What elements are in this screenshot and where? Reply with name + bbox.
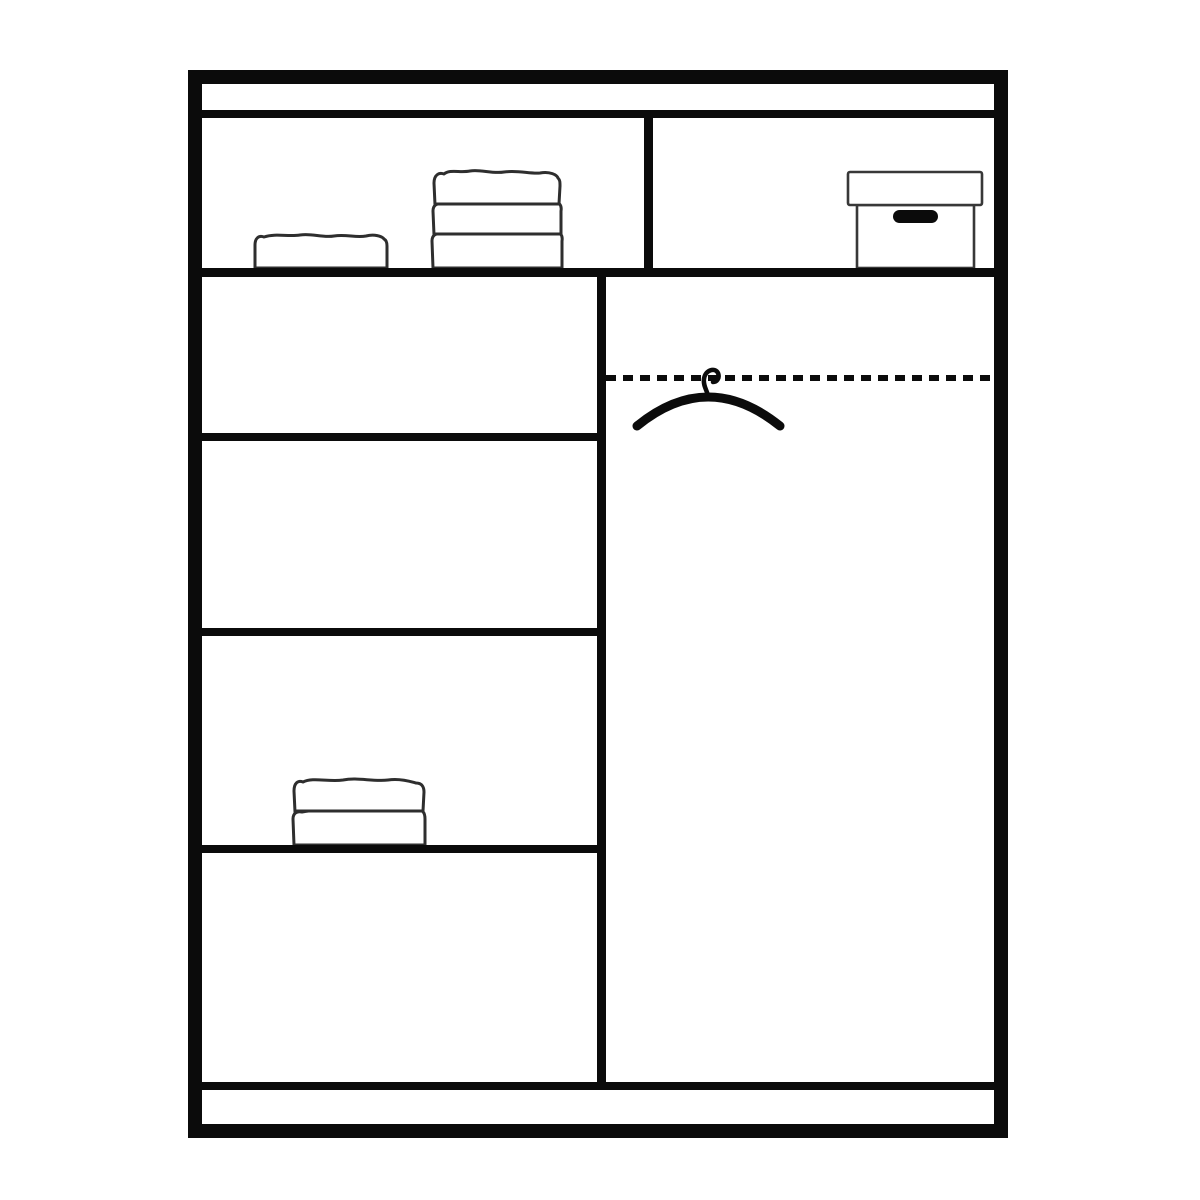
folded-towel-stack-3 <box>427 168 568 268</box>
wardrobe-diagram <box>0 0 1200 1200</box>
main-column-divider <box>597 277 606 1090</box>
left-shelf-line-3 <box>202 845 601 853</box>
bottom-shelf-line <box>202 1082 994 1090</box>
storage-box-icon <box>842 168 987 268</box>
left-shelf-line-1 <box>202 433 601 441</box>
top-strip-line <box>202 110 994 118</box>
top-shelf-line <box>202 268 994 277</box>
region-left-compartment-4 <box>202 853 597 1082</box>
clothes-hanger <box>622 354 792 439</box>
wardrobe-frame <box>188 70 1008 1138</box>
region-left-compartment-1 <box>202 277 597 433</box>
region-left-compartment-2 <box>202 441 597 628</box>
folded-towel-stack-2-icon <box>288 776 430 845</box>
folded-towel-stack-2 <box>288 776 430 845</box>
top-shelf-divider <box>644 118 653 277</box>
folded-towel-single-icon <box>250 230 392 268</box>
box-handle-slot <box>893 210 938 223</box>
wardrobe-interior <box>202 84 994 1124</box>
region-bottom-plinth <box>202 1090 994 1124</box>
folded-towel-stack-3-icon <box>427 168 568 268</box>
folded-towel-single <box>250 230 392 268</box>
clothes-hanger-icon <box>622 354 792 439</box>
storage-box <box>842 168 987 268</box>
left-shelf-line-2 <box>202 628 601 636</box>
region-top-strip-panel <box>202 84 994 110</box>
